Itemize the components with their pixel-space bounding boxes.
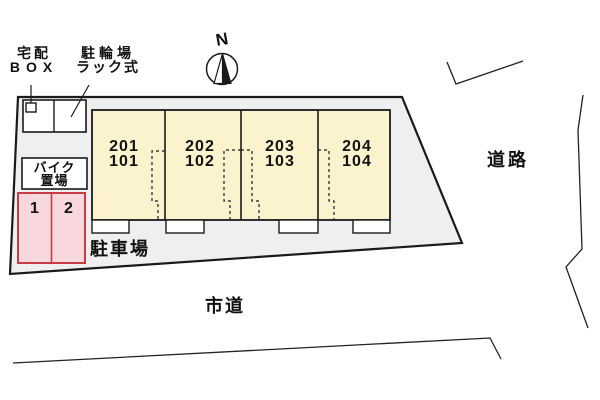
bike-storage-label-line2: 置場 — [22, 174, 87, 187]
road-label: 道路 — [487, 151, 529, 169]
unit-label-202-102: 202 102 — [168, 139, 232, 169]
bicycle-rack-label: 駐輪場 ラック式 — [64, 46, 152, 74]
delivery-box-unit — [26, 103, 36, 112]
parking-spot-1-number: 1 — [18, 201, 51, 217]
unit-103: 103 — [248, 154, 312, 169]
road-edge-right — [566, 95, 588, 328]
delivery-box-label-line1: 宅配 — [2, 46, 66, 60]
unit-102: 102 — [168, 154, 232, 169]
porch-unit2 — [166, 220, 204, 233]
bicycle-rack-label-line1: 駐輪場 — [64, 46, 152, 60]
bike-storage-label: バイク 置場 — [22, 161, 87, 187]
parking-spot-2-number: 2 — [52, 201, 85, 217]
unit-201: 201 — [92, 139, 156, 154]
city-road-edge-bottom — [13, 338, 501, 363]
unit-label-201-101: 201 101 — [92, 139, 156, 169]
porch-unit1 — [92, 220, 129, 233]
delivery-box-label: 宅配 BOX — [2, 46, 66, 74]
city-road-label: 市道 — [205, 297, 245, 315]
parking-lot-label: 駐車場 — [90, 240, 150, 258]
unit-101: 101 — [92, 154, 156, 169]
unit-label-204-104: 204 104 — [325, 139, 389, 169]
porch-unit3 — [279, 220, 318, 233]
unit-202: 202 — [168, 139, 232, 154]
compass-icon — [207, 54, 238, 85]
porch-unit4 — [353, 220, 390, 233]
unit-label-203-103: 203 103 — [248, 139, 312, 169]
road-edge-top-right — [447, 61, 523, 84]
unit-203: 203 — [248, 139, 312, 154]
bicycle-rack-label-line2: ラック式 — [64, 60, 152, 74]
delivery-box-label-line2: BOX — [2, 60, 66, 74]
unit-104: 104 — [325, 154, 389, 169]
unit-204: 204 — [325, 139, 389, 154]
site-plan: 宅配 BOX 駐輪場 ラック式 N 201 101 202 102 203 10… — [0, 0, 600, 400]
